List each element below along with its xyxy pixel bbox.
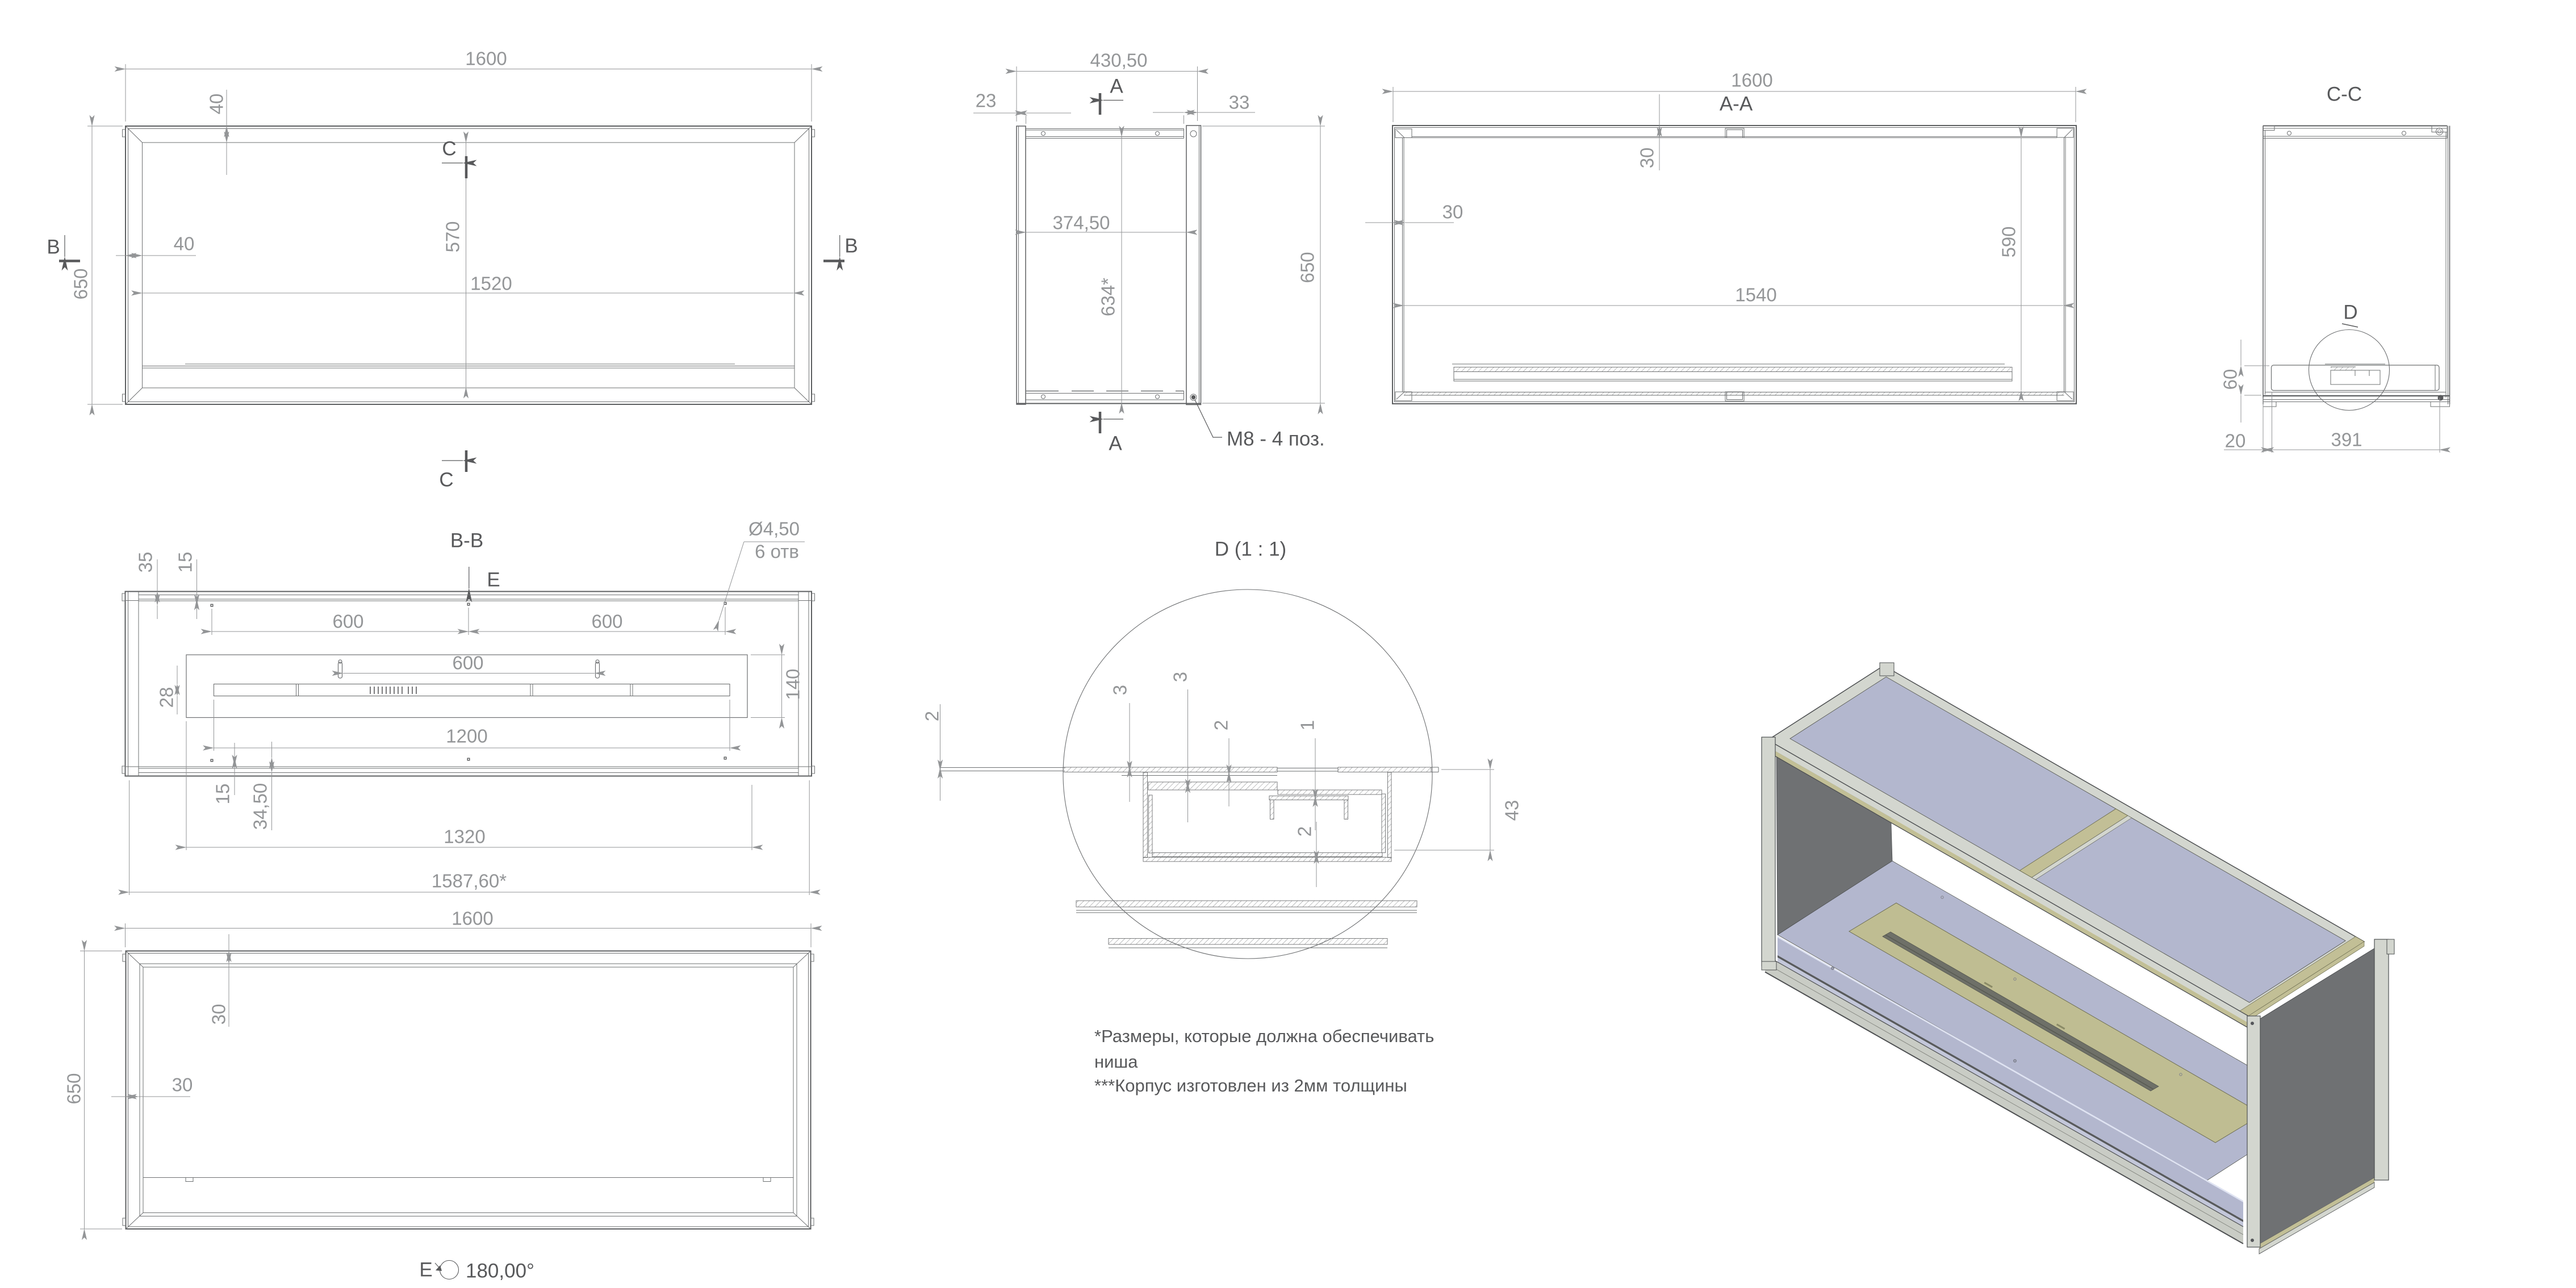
svg-text:600: 600 [452, 653, 483, 674]
svg-text:30: 30 [1637, 148, 1658, 169]
svg-text:650: 650 [64, 1073, 85, 1104]
svg-text:A: A [1110, 75, 1123, 97]
svg-text:600: 600 [591, 611, 622, 632]
svg-text:6 отв: 6 отв [755, 541, 799, 562]
svg-text:30: 30 [172, 1074, 193, 1095]
svg-text:A-A: A-A [1720, 93, 1753, 115]
svg-text:M8 - 4 поз.: M8 - 4 поз. [1227, 428, 1325, 450]
svg-text:1540: 1540 [1735, 285, 1776, 306]
svg-text:1200: 1200 [446, 726, 487, 747]
svg-text:15: 15 [175, 552, 196, 573]
svg-text:1600: 1600 [1731, 70, 1772, 91]
svg-text:40: 40 [206, 94, 227, 115]
svg-text:570: 570 [442, 221, 463, 252]
svg-text:3: 3 [1110, 685, 1131, 695]
svg-text:590: 590 [1998, 226, 2019, 257]
svg-text:20: 20 [2225, 430, 2246, 451]
svg-text:28: 28 [156, 687, 177, 708]
svg-text:430,50: 430,50 [1090, 50, 1148, 71]
svg-text:140: 140 [783, 668, 804, 700]
svg-text:D: D [2343, 301, 2357, 323]
svg-text:40: 40 [174, 233, 195, 254]
svg-text:30: 30 [208, 1004, 229, 1025]
svg-text:634*: 634* [1098, 278, 1119, 316]
svg-text:2: 2 [1294, 826, 1315, 837]
svg-text:15: 15 [212, 784, 233, 805]
svg-text:600: 600 [332, 611, 363, 632]
svg-text:180,00°: 180,00° [466, 1260, 534, 1282]
svg-text:*Размеры, которые должна обесп: *Размеры, которые должна обеспечивать [1094, 1026, 1434, 1046]
svg-text:1587,60*: 1587,60* [432, 871, 507, 892]
svg-text:23: 23 [976, 90, 997, 111]
svg-text:B-B: B-B [450, 529, 483, 551]
svg-text:30: 30 [1442, 202, 1463, 223]
svg-text:650: 650 [70, 268, 91, 299]
svg-text:1520: 1520 [470, 273, 512, 294]
svg-text:C: C [439, 469, 453, 491]
svg-text:C: C [442, 137, 456, 160]
svg-text:2: 2 [1211, 720, 1232, 730]
svg-text:B: B [47, 236, 60, 258]
svg-text:3: 3 [1170, 672, 1191, 682]
svg-text:374,50: 374,50 [1053, 212, 1110, 233]
svg-text:ниша: ниша [1094, 1052, 1138, 1072]
svg-text:***Корпус изготовлен из 2мм то: ***Корпус изготовлен из 2мм толщины [1094, 1076, 1407, 1095]
svg-text:E: E [487, 568, 500, 591]
svg-text:60: 60 [2220, 369, 2241, 390]
svg-text:1: 1 [1297, 720, 1318, 730]
svg-text:A: A [1109, 432, 1122, 454]
svg-text:1600: 1600 [451, 908, 493, 929]
svg-text:B: B [844, 235, 858, 257]
svg-text:43: 43 [1502, 800, 1523, 821]
svg-text:Ø4,50: Ø4,50 [748, 518, 800, 540]
svg-text:1320: 1320 [444, 826, 485, 847]
svg-text:2: 2 [922, 711, 943, 721]
svg-text:34,50: 34,50 [250, 783, 271, 830]
svg-text:1600: 1600 [465, 48, 507, 69]
svg-text:E: E [419, 1258, 432, 1281]
svg-text:D (1 : 1): D (1 : 1) [1215, 538, 1286, 560]
svg-text:650: 650 [1297, 252, 1318, 283]
svg-text:C-C: C-C [2327, 83, 2362, 105]
svg-text:33: 33 [1229, 92, 1250, 113]
svg-text:35: 35 [135, 552, 156, 573]
svg-text:391: 391 [2331, 429, 2362, 450]
